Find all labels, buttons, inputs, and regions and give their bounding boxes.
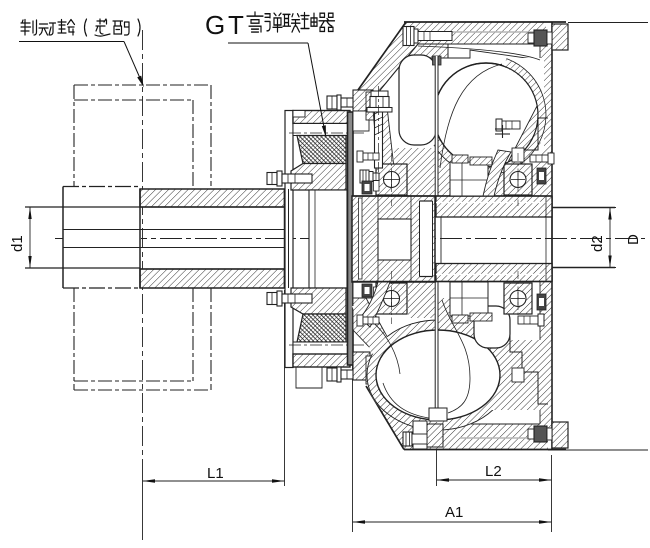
svg-text:D: D bbox=[625, 234, 642, 245]
svg-text:L2: L2 bbox=[485, 463, 502, 480]
svg-text:T: T bbox=[228, 10, 244, 40]
svg-text:L1: L1 bbox=[207, 465, 224, 482]
svg-text:G: G bbox=[205, 10, 225, 40]
svg-text:A1: A1 bbox=[445, 504, 463, 521]
svg-text:d1: d1 bbox=[9, 235, 26, 252]
svg-text:d2: d2 bbox=[589, 235, 606, 252]
